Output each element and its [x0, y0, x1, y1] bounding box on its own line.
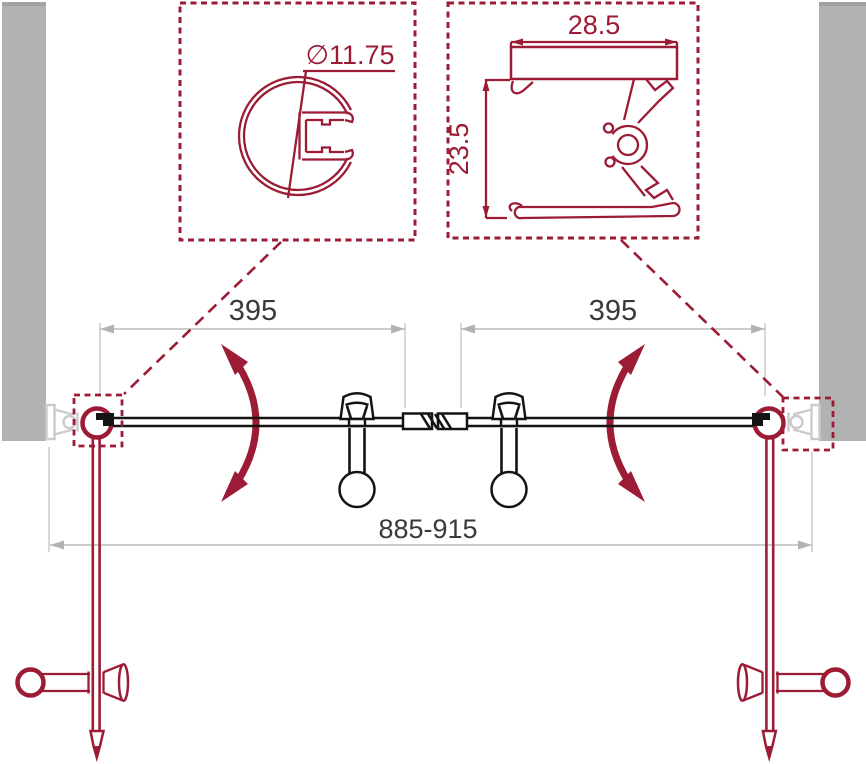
technical-drawing-page: 395 395 885-915 — [0, 0, 866, 764]
bracket-anchor-right — [823, 670, 849, 696]
hinge-right — [752, 409, 784, 438]
wall-left — [2, 2, 46, 441]
right-door-width-label: 395 — [589, 295, 637, 327]
hinge-diameter-label: ∅11.75 — [305, 40, 394, 70]
wall-bracket-right — [738, 664, 849, 701]
left-door-width-label: 395 — [229, 295, 277, 327]
swing-arrow-left — [221, 344, 256, 502]
detail-view-hinge-profile: ∅11.75 — [180, 3, 415, 240]
magnet-closure — [403, 414, 467, 430]
handle-left — [340, 393, 375, 507]
handle-left-knob — [340, 472, 375, 507]
wall-right — [819, 2, 866, 441]
wall-profile-drawing-right — [789, 405, 820, 439]
bracket-anchor-left — [18, 670, 44, 696]
dimension-overall-width: 885-915 — [49, 447, 812, 552]
fixed-panel-left — [91, 430, 104, 758]
wall-bracket-left — [18, 664, 129, 701]
fixed-panel-right — [763, 430, 776, 758]
profile-height-label: 23.5 — [444, 123, 474, 176]
wall-right-edge — [819, 2, 866, 6]
drawing-canvas: 395 395 885-915 — [0, 0, 866, 764]
detail-leader-right — [621, 240, 783, 397]
overall-width-label: 885-915 — [378, 514, 477, 544]
detail-view-wall-profile: 28.5 23.5 — [444, 3, 698, 238]
wall-left-body — [2, 2, 46, 441]
wall-left-edge — [2, 2, 46, 6]
hinge-left — [83, 409, 115, 438]
profile-width-label: 28.5 — [568, 10, 621, 40]
wall-right-body — [819, 2, 866, 441]
detail-box-left — [180, 3, 415, 240]
handle-right-knob — [492, 472, 527, 507]
handle-right — [492, 393, 527, 507]
swing-arrow-right — [610, 344, 645, 502]
